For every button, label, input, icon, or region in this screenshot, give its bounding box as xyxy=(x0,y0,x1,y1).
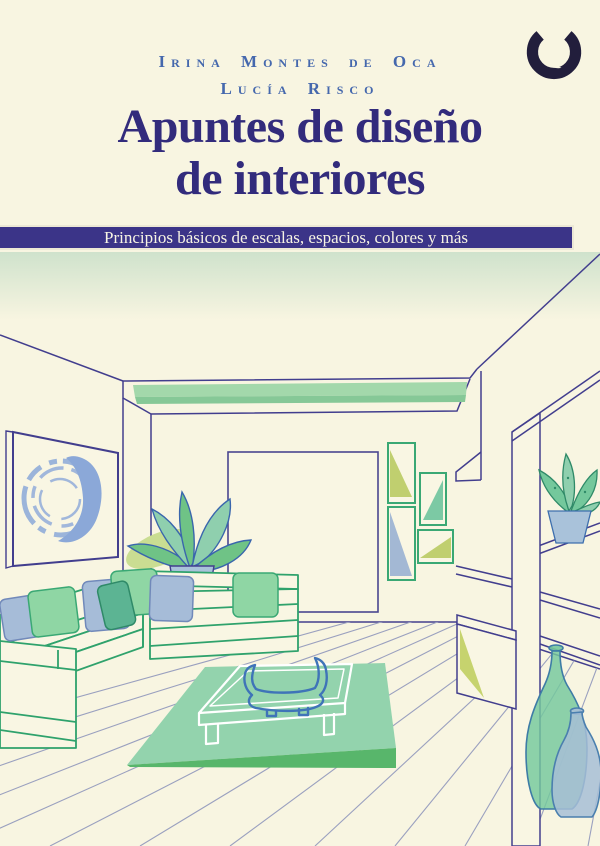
subtitle-text: Principios básicos de escalas, espacios,… xyxy=(104,228,468,248)
author-2: Lucía Risco xyxy=(0,75,600,102)
title-line-1: Apuntes de diseño xyxy=(118,100,483,153)
panel-1 xyxy=(388,443,415,503)
author-names: Irina Montes de Oca Lucía Risco xyxy=(0,48,600,102)
ceiling-beam xyxy=(133,382,467,404)
panel-2 xyxy=(420,473,446,525)
shelf-plant xyxy=(539,454,600,543)
author-1: Irina Montes de Oca xyxy=(0,48,600,75)
side-cabinet xyxy=(457,615,516,709)
area-rug xyxy=(127,663,396,768)
pillow xyxy=(233,573,278,617)
pillow xyxy=(149,575,194,621)
title-line-2: de interiores xyxy=(175,152,425,205)
book-title: Apuntes de diseño de interiores xyxy=(0,101,600,205)
book-cover: Irina Montes de Oca Lucía Risco Apuntes … xyxy=(0,0,600,846)
room-illustration xyxy=(0,252,600,846)
subtitle-banner: Principios básicos de escalas, espacios,… xyxy=(0,225,574,250)
wall-painting xyxy=(6,431,118,568)
panel-3 xyxy=(388,507,415,580)
pillow xyxy=(27,586,79,637)
gallery-panels xyxy=(388,443,453,580)
panel-4 xyxy=(418,530,453,563)
ceiling-gradient xyxy=(0,252,600,320)
shelf-plant-pot xyxy=(548,511,591,543)
